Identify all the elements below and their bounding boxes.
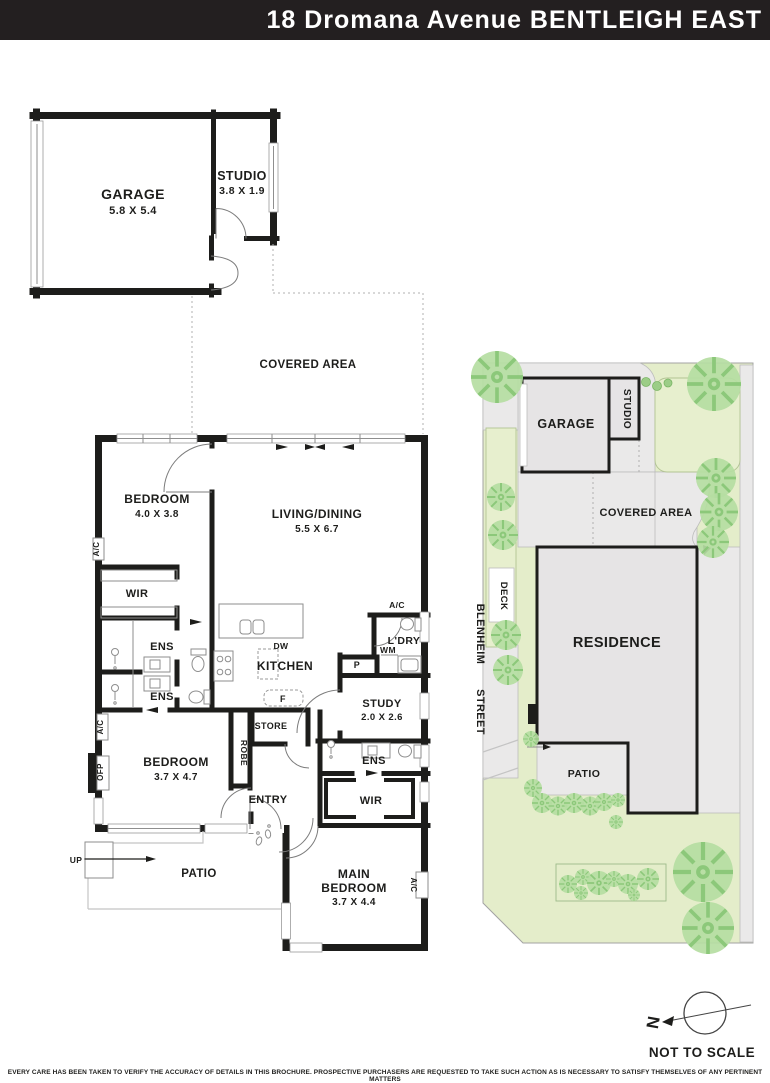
- label-entry: ENTRY: [249, 794, 288, 806]
- disclaimer-text: EVERY CARE HAS BEEN TAKEN TO VERIFY THE …: [0, 1069, 770, 1083]
- label-ens1: ENS: [150, 641, 174, 653]
- dims-bedroom1: 4.0 X 3.8: [135, 509, 179, 520]
- street-name-line1: BLENHEIM: [474, 604, 486, 665]
- label-ac-left2: A/C: [96, 720, 105, 735]
- label-ac-main-bedroom: A/C: [409, 878, 418, 893]
- label-wir1: WIR: [126, 588, 149, 600]
- site-label-residence: RESIDENCE: [573, 635, 661, 651]
- site-label-patio: PATIO: [568, 768, 601, 780]
- label-robe: ROBE: [239, 740, 249, 766]
- label-main-bedroom-2: BEDROOM: [321, 881, 386, 895]
- label-kitchen: KITCHEN: [257, 659, 313, 673]
- label-dishwasher: DW: [274, 641, 290, 651]
- site-label-deck: DECK: [498, 582, 509, 611]
- label-ac-laundry: A/C: [389, 600, 405, 610]
- label-ens3: ENS: [362, 755, 386, 767]
- site-label-covered-area: COVERED AREA: [599, 507, 692, 519]
- north-label: N: [643, 1014, 664, 1030]
- site-plan: GARAGE STUDIO COVERED AREA RESIDENCE DEC…: [471, 351, 753, 954]
- site-label-garage: GARAGE: [537, 417, 594, 431]
- floorplan-garage-block: [31, 112, 278, 295]
- label-bedroom2: BEDROOM: [143, 755, 208, 769]
- dims-garage: 5.8 X 5.4: [109, 205, 157, 217]
- label-main-bedroom-1: MAIN: [338, 867, 370, 881]
- compass: N: [643, 992, 751, 1034]
- floorplan-labels: GARAGE 5.8 X 5.4 STUDIO 3.8 X 1.9 COVERE…: [70, 169, 421, 908]
- label-patio: PATIO: [181, 868, 216, 880]
- label-up: UP: [70, 855, 83, 865]
- dims-study: 2.0 X 2.6: [361, 712, 403, 723]
- label-ofp: OFP: [96, 763, 105, 781]
- dims-main-bedroom: 3.7 X 4.4: [332, 897, 376, 908]
- dims-bedroom2: 3.7 X 4.7: [154, 772, 198, 783]
- covered-area-boundary: [192, 244, 423, 434]
- label-laundry: L'DRY: [388, 635, 421, 647]
- street-name-line2: STREET: [474, 689, 486, 735]
- label-fridge: F: [280, 694, 286, 704]
- label-ens2: ENS: [150, 691, 174, 703]
- plan-canvas: GARAGE STUDIO COVERED AREA RESIDENCE DEC…: [0, 0, 770, 1080]
- label-pantry: P: [354, 660, 360, 670]
- site-fireplace: [528, 704, 537, 724]
- label-covered-area: COVERED AREA: [259, 359, 356, 371]
- label-wir2: WIR: [360, 795, 383, 807]
- label-garage: GARAGE: [101, 186, 165, 202]
- label-store: STORE: [255, 721, 288, 731]
- label-bedroom1: BEDROOM: [124, 492, 189, 506]
- scale-note: NOT TO SCALE: [634, 1045, 770, 1060]
- label-study: STUDY: [362, 698, 402, 710]
- label-living-dining: LIVING/DINING: [272, 507, 363, 521]
- site-label-studio: STUDIO: [621, 389, 632, 429]
- dims-studio: 3.8 X 1.9: [219, 185, 265, 197]
- label-studio: STUDIO: [217, 169, 267, 183]
- label-ac-left1: A/C: [92, 542, 101, 557]
- dims-living-dining: 5.5 X 6.7: [295, 524, 339, 535]
- north-arrow-icon: [662, 1016, 674, 1026]
